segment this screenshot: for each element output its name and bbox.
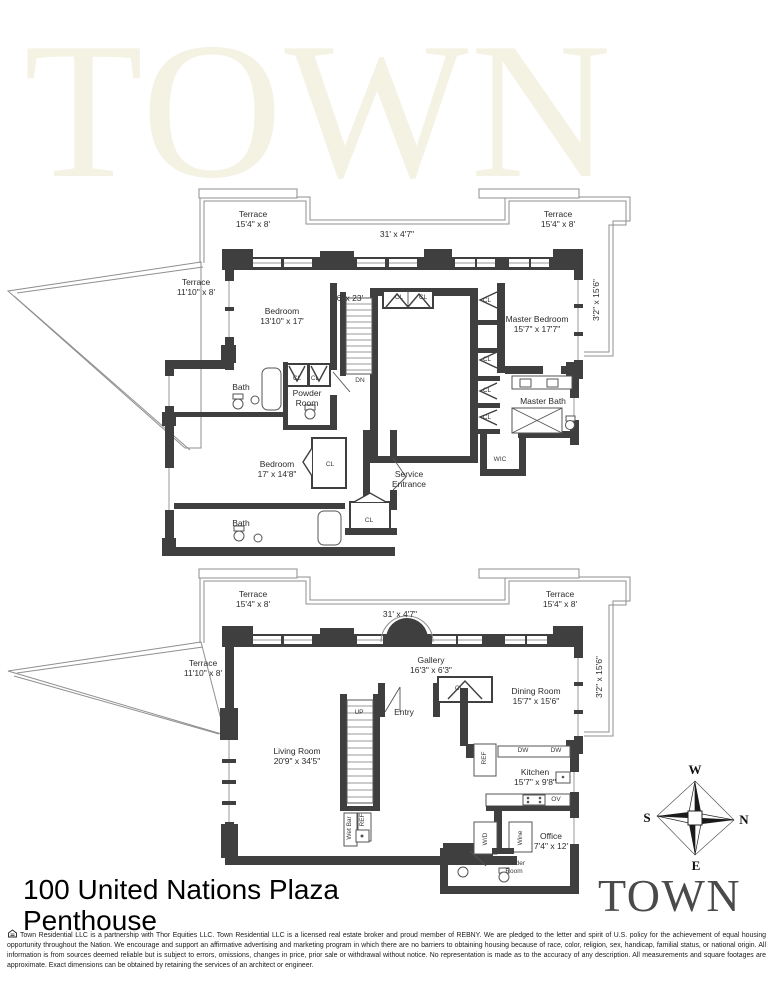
stairs-up-icon [340, 694, 380, 811]
kitchen-counters [466, 744, 570, 811]
shower-icon [512, 408, 562, 433]
upper-floor-plan [8, 189, 630, 556]
lower-floor-plan [8, 569, 630, 894]
bathtub-icon [262, 368, 281, 410]
compass-north-label: N [739, 812, 749, 827]
toilet-icon [566, 416, 576, 430]
compass-rose: W S N E [633, 760, 763, 875]
wet-bar-icon [344, 813, 371, 846]
stairs-down-icon [340, 292, 372, 376]
disclaimer-text: Town Residential LLC is a partnership wi… [7, 929, 766, 971]
compass-west-label: W [689, 762, 702, 777]
town-logo: TOWN [598, 873, 741, 919]
disclaimer-body: Town Residential LLC is a partnership wi… [7, 932, 766, 969]
floor-plan-sheet: TOWN [0, 0, 773, 1000]
vanity-icon [512, 376, 572, 389]
compass-south-label: S [643, 810, 650, 825]
listing-address: 100 United Nations Plaza Penthouse [23, 874, 339, 936]
bathtub-icon [318, 511, 341, 545]
address-line: 100 United Nations Plaza [23, 874, 339, 905]
equal-housing-icon [7, 929, 18, 938]
